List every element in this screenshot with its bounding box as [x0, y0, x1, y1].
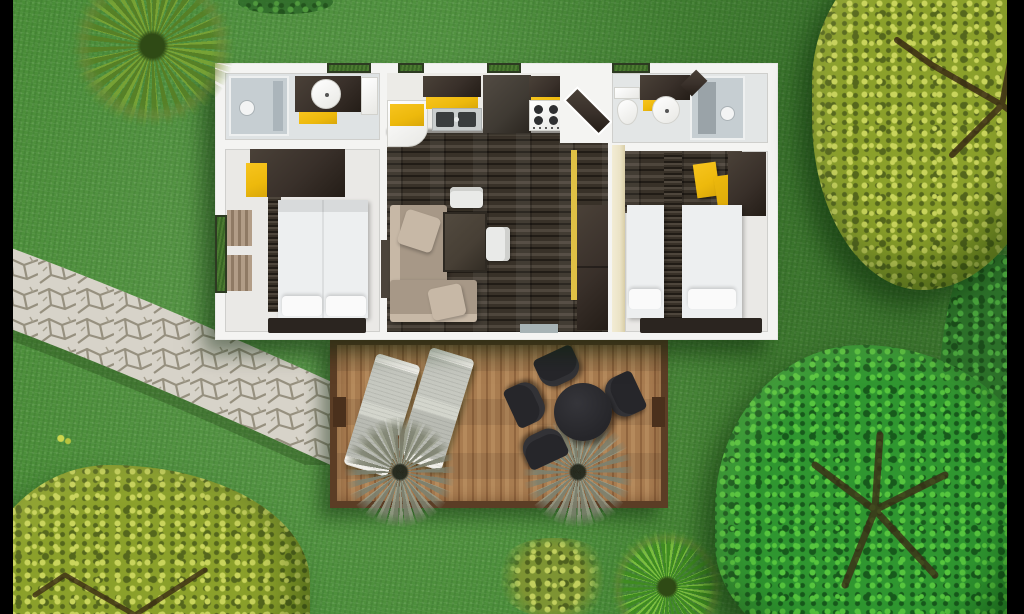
living-wardrobe	[577, 205, 608, 330]
shower-left	[229, 76, 289, 136]
window-bedroom-left	[215, 215, 227, 293]
stone-accent-strip-right	[664, 151, 682, 321]
window-kitchen-1	[398, 63, 424, 73]
appliance-left	[361, 77, 378, 115]
burner-4	[549, 116, 558, 125]
left-black-bar	[0, 0, 13, 614]
shower-panel	[698, 82, 716, 134]
window-bath-left	[327, 63, 371, 73]
deck-chair-left	[502, 377, 550, 429]
deck-post-left	[333, 397, 346, 427]
sink-counter	[432, 108, 482, 131]
duvet-seam	[322, 200, 324, 318]
right-black-bar	[1007, 0, 1024, 614]
burner-3	[534, 116, 543, 125]
sink-basin-2	[458, 112, 476, 127]
curtain-bottom	[227, 255, 252, 291]
shower-glass-line	[273, 81, 283, 131]
stove	[529, 100, 563, 131]
tree-bottom-right	[715, 345, 1024, 614]
sink-right	[652, 96, 680, 124]
burner-1	[534, 105, 543, 114]
leaf-patch-top	[238, 0, 333, 14]
window-kitchen-2	[487, 63, 521, 73]
pillow-twin-2	[688, 289, 736, 309]
yucca-bottom-center	[608, 528, 726, 614]
terrace-deck	[330, 338, 668, 508]
yellow-panel-wardrobe-left	[246, 163, 267, 197]
twin-bed-1	[627, 205, 664, 318]
deck-post-right	[652, 397, 665, 427]
faucet-icon	[454, 117, 459, 122]
sink-drain	[325, 93, 329, 97]
tree-bottom-left	[0, 465, 310, 614]
bed-bench-left	[268, 318, 366, 333]
yucca-top-left	[70, 0, 235, 130]
shower-head-right-icon	[720, 106, 735, 121]
pillow-1	[282, 296, 322, 316]
bed-bench-right	[640, 318, 762, 333]
pillow-2	[326, 296, 366, 316]
stove-controls	[533, 127, 561, 129]
white-chair-right	[486, 227, 510, 261]
wardrobe-seam	[577, 266, 608, 268]
double-bed	[278, 200, 368, 318]
twin-bed-2	[682, 205, 742, 318]
tree-top-right	[812, 0, 1024, 290]
round-dining-table	[554, 383, 612, 441]
pillow-twin-1	[629, 289, 661, 309]
shower-head-icon	[239, 100, 255, 116]
sink-left	[311, 79, 341, 109]
tall-unit	[483, 75, 531, 133]
yellow-front-left	[390, 104, 424, 126]
sink-basin-1	[436, 112, 454, 127]
garden-scene	[0, 0, 1024, 614]
dining-table-indoor	[443, 212, 487, 272]
yellow-cabinet-bath-left	[299, 112, 337, 124]
flower-dots	[56, 434, 72, 445]
upper-cabinet-1	[423, 76, 481, 97]
doormat	[520, 324, 558, 333]
palm-plant-1	[345, 417, 455, 527]
white-chair-top	[450, 187, 483, 208]
toilet-tank	[614, 87, 640, 99]
shrub-bottom-center	[495, 538, 610, 614]
floor-plan-house	[215, 63, 778, 340]
shower-right	[690, 76, 745, 140]
curtain-top	[227, 210, 252, 246]
burner-2	[549, 105, 558, 114]
sink-drain-right	[665, 109, 669, 113]
cream-wall-strip	[612, 145, 625, 332]
window-bath-right	[612, 63, 650, 73]
